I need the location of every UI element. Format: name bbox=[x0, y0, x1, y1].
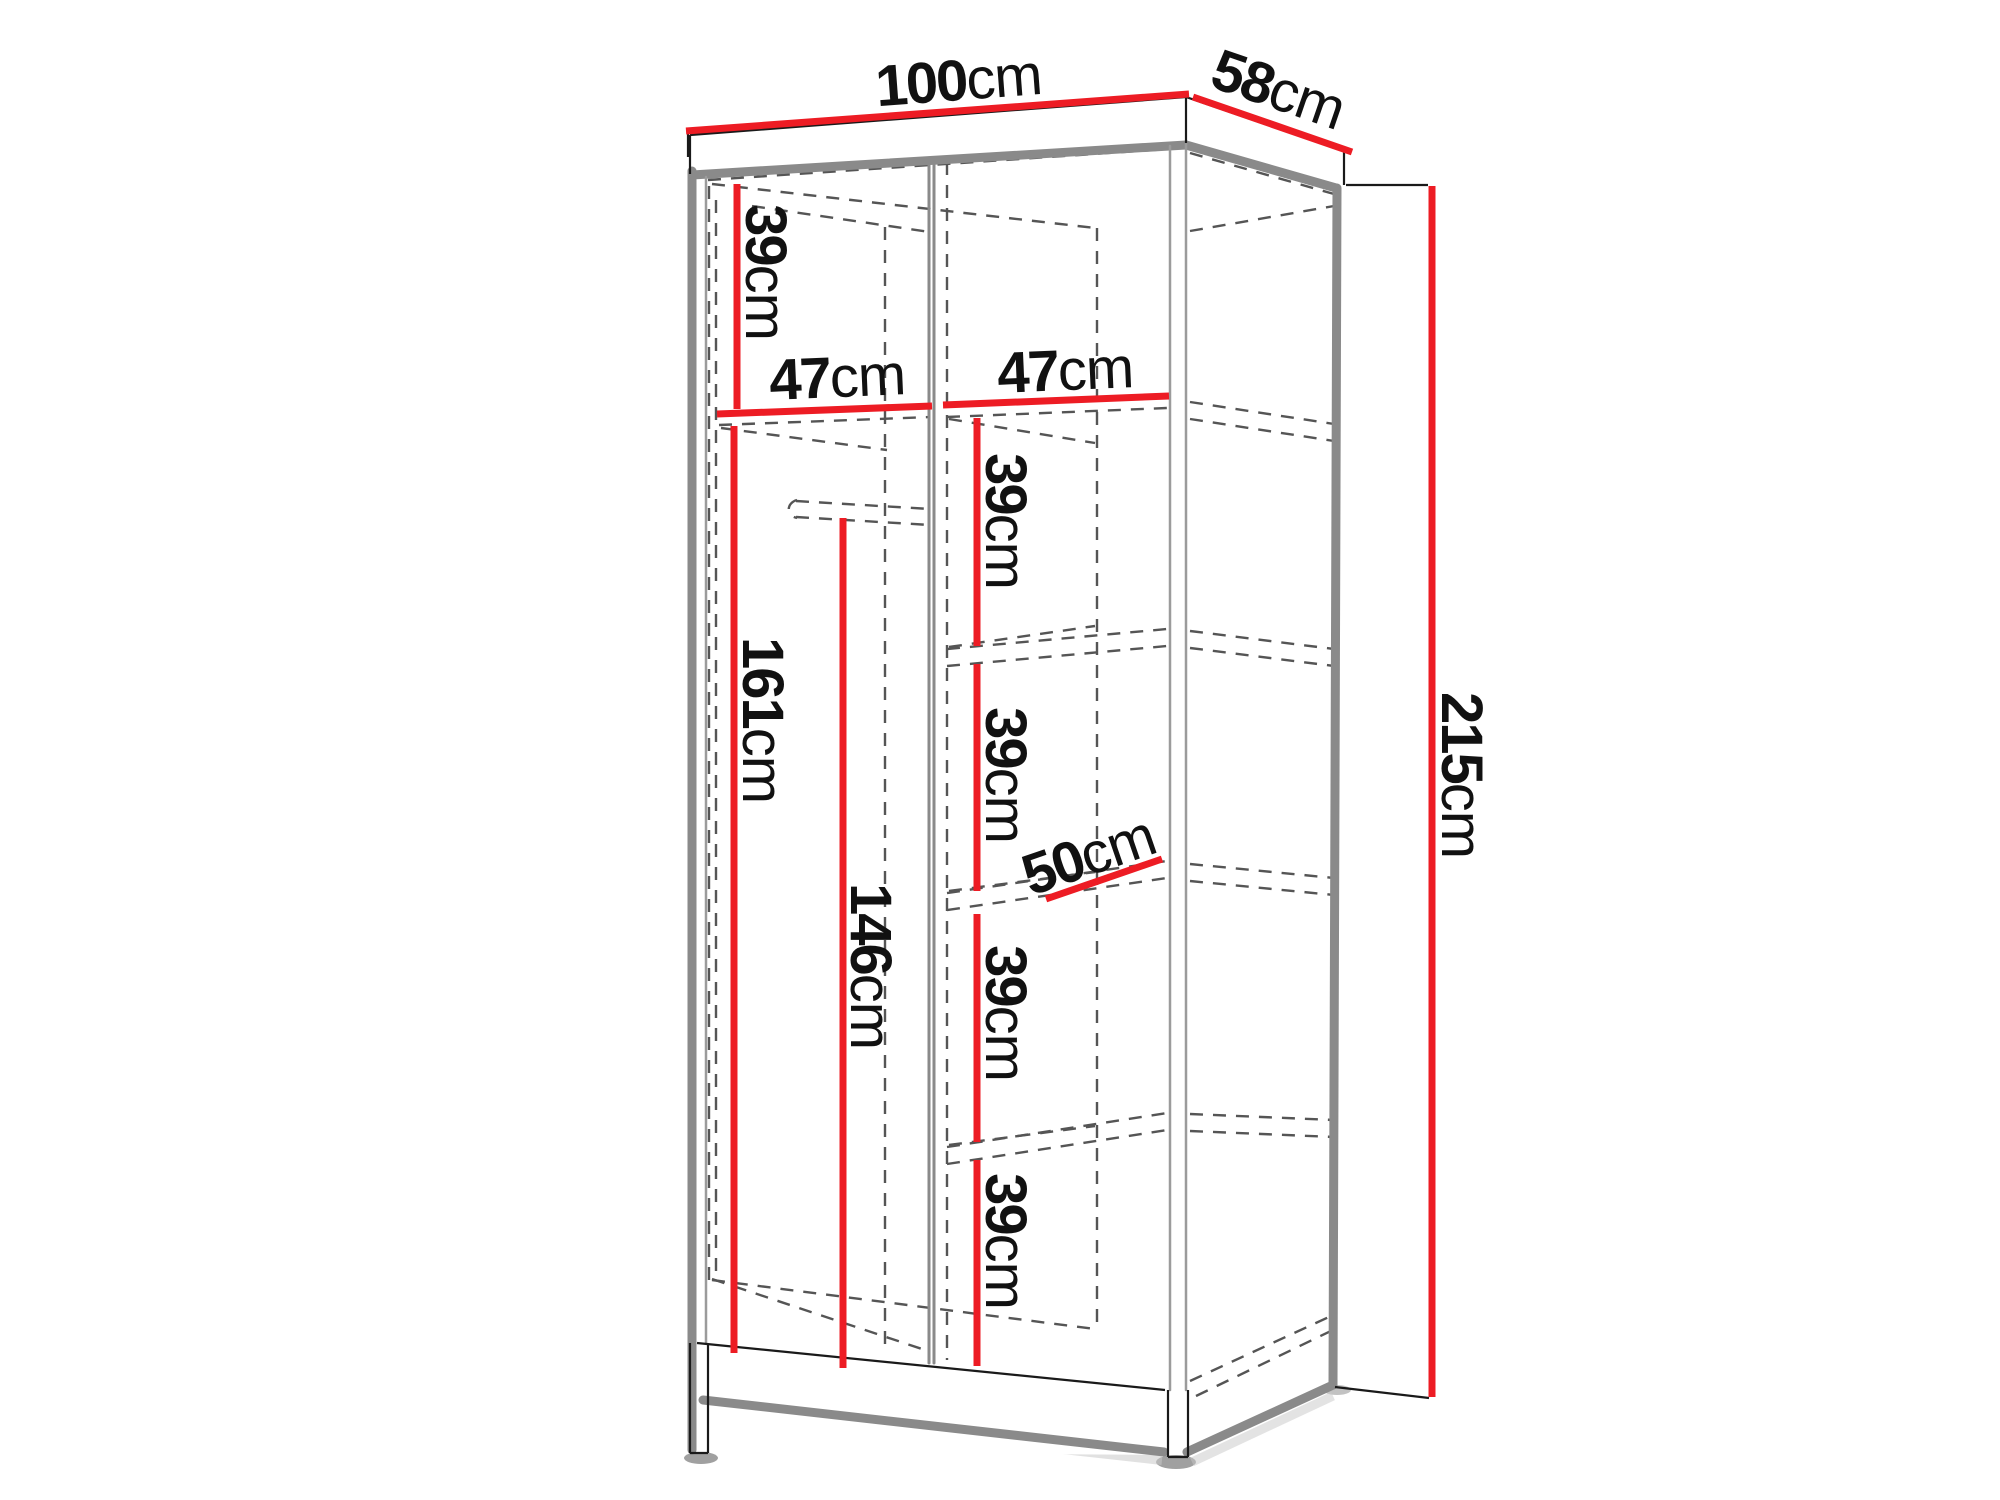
left-compartment-width-label: 47cm bbox=[768, 342, 907, 413]
top-section-label: 39cm bbox=[733, 204, 798, 340]
shelf-gap-4-label: 39cm bbox=[973, 1173, 1038, 1309]
right-compartment-width-label: 47cm bbox=[996, 335, 1135, 406]
width-label: 100cm bbox=[873, 42, 1044, 119]
shelf-gap-1-label: 39cm bbox=[973, 453, 1038, 589]
right-side-face bbox=[1186, 143, 1338, 1453]
diagram-canvas: 100cm 58cm 215cm 39cm 47cm 47cm 161cm 14… bbox=[0, 0, 2000, 1500]
shelf-gap-3-label: 39cm bbox=[973, 945, 1038, 1081]
back-right-edge bbox=[1333, 188, 1337, 1385]
hanging-space-label: 161cm bbox=[730, 637, 795, 803]
wardrobe-dimension-diagram: 100cm 58cm 215cm 39cm 47cm 47cm 161cm 14… bbox=[0, 0, 2000, 1500]
rail-clearance-label: 146cm bbox=[838, 883, 903, 1049]
shelf-gap-2-label: 39cm bbox=[973, 707, 1038, 843]
height-label: 215cm bbox=[1429, 692, 1494, 858]
